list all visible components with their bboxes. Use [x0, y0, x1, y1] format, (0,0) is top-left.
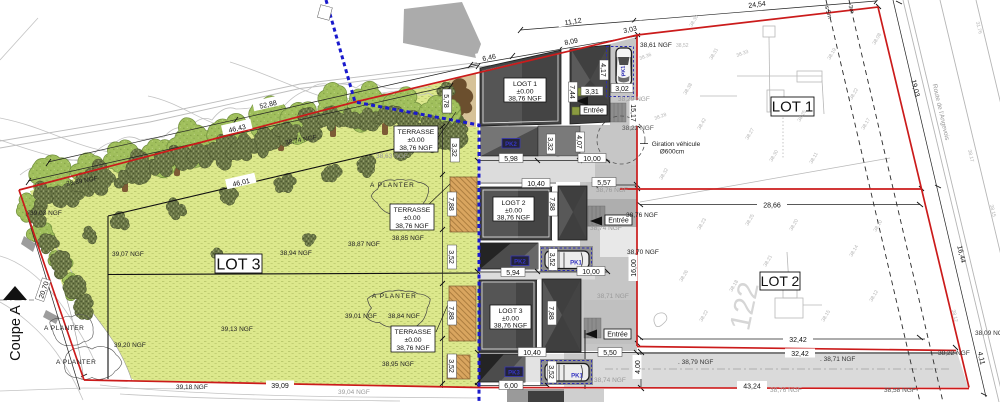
svg-text:LOT 2: LOT 2	[761, 273, 800, 289]
svg-text:39,20 NGF: 39,20 NGF	[114, 342, 146, 349]
svg-text:3,32: 3,32	[546, 137, 553, 151]
svg-text:38,71 NGF: 38,71 NGF	[597, 293, 629, 300]
svg-text:4,00: 4,00	[635, 360, 642, 374]
svg-text:LOGT 1: LOGT 1	[513, 81, 537, 88]
svg-text:16,00: 16,00	[631, 259, 638, 277]
svg-text:38,52: 38,52	[676, 43, 689, 49]
svg-text:7,88: 7,88	[548, 197, 555, 211]
svg-text:Entrée: Entrée	[583, 108, 604, 115]
svg-text:. 38,79 NGF: . 38,79 NGF	[678, 359, 713, 366]
svg-text:PK1: PK1	[570, 261, 582, 267]
svg-text:38,22 NGF: 38,22 NGF	[622, 125, 654, 132]
svg-text:Giration véhicule: Giration véhicule	[652, 141, 701, 148]
svg-text:38,29 NGF: 38,29 NGF	[618, 96, 650, 103]
svg-text:7,88: 7,88	[447, 197, 454, 211]
svg-text:32,42: 32,42	[791, 351, 809, 358]
svg-text:PK1: PK1	[621, 65, 628, 76]
svg-text:32,42: 32,42	[789, 337, 807, 344]
svg-text:38,74 NGF: 38,74 NGF	[590, 225, 622, 232]
svg-text:Entrée: Entrée	[607, 332, 628, 339]
svg-text:A PLANTER: A PLANTER	[56, 359, 96, 366]
svg-text:TERRASSE: TERRASSE	[394, 207, 431, 214]
svg-text:43,24: 43,24	[743, 384, 761, 391]
svg-text:39,18 NGF: 39,18 NGF	[176, 384, 208, 391]
svg-text:38,76 NGF: 38,76 NGF	[399, 145, 432, 152]
svg-text:38,94 NGF: 38,94 NGF	[280, 250, 312, 257]
svg-text:±0.00: ±0.00	[502, 316, 519, 323]
svg-text:38,61 NGF: 38,61 NGF	[640, 42, 672, 49]
svg-text:5,78: 5,78	[442, 94, 449, 108]
svg-text:7,44: 7,44	[568, 85, 575, 99]
svg-text:39,09: 39,09	[271, 383, 289, 390]
svg-text:±0.00: ±0.00	[408, 137, 425, 144]
svg-text:A PLANTER: A PLANTER	[44, 325, 84, 332]
svg-text:3,02: 3,02	[615, 86, 629, 93]
svg-text:TERRASSE: TERRASSE	[395, 329, 432, 336]
svg-text:15,17: 15,17	[629, 104, 636, 122]
svg-text:39,01 NGF: 39,01 NGF	[345, 313, 377, 320]
svg-text:28,66: 28,66	[763, 203, 781, 210]
svg-text:39,07 NGF: 39,07 NGF	[112, 251, 144, 258]
svg-text:38,87 NGF: 38,87 NGF	[348, 241, 380, 248]
svg-text:10,00: 10,00	[582, 269, 600, 276]
svg-text:PK2: PK2	[505, 142, 517, 148]
svg-text:4,07: 4,07	[575, 135, 582, 149]
svg-text:38,76 NGF: 38,76 NGF	[494, 323, 527, 330]
svg-text:LOGT 2: LOGT 2	[501, 200, 525, 207]
svg-text:39,04 NGF: 39,04 NGF	[338, 389, 370, 396]
svg-text:38,95 NGF: 38,95 NGF	[382, 361, 414, 368]
svg-text:10,40: 10,40	[527, 181, 545, 188]
svg-text:4,17: 4,17	[599, 63, 606, 77]
svg-text:39,03 NGF: 39,03 NGF	[30, 210, 62, 217]
svg-text:3,52: 3,52	[447, 250, 454, 264]
svg-text:3,52: 3,52	[447, 359, 454, 373]
svg-text:PK2: PK2	[514, 260, 526, 266]
svg-text:5,98: 5,98	[504, 156, 518, 163]
svg-text:39,13 NGF: 39,13 NGF	[221, 326, 253, 333]
svg-text:38,74 NGF: 38,74 NGF	[594, 377, 626, 384]
svg-text:3,32: 3,32	[450, 143, 457, 157]
svg-text:38,70 NGF: 38,70 NGF	[627, 249, 659, 256]
svg-text:A PLANTER: A PLANTER	[372, 293, 417, 300]
svg-text:7,88: 7,88	[547, 306, 554, 320]
svg-text:3,31: 3,31	[585, 89, 599, 96]
svg-text:. 38,71 NGF: . 38,71 NGF	[820, 356, 855, 363]
svg-text:5,57: 5,57	[597, 180, 611, 187]
svg-text:TERRASSE: TERRASSE	[398, 129, 435, 136]
svg-text:38,09 NGF: 38,09 NGF	[975, 330, 1000, 337]
svg-text:5,50: 5,50	[603, 350, 617, 357]
svg-text:38,76 NGF: 38,76 NGF	[508, 96, 541, 103]
svg-text:±0.00: ±0.00	[405, 337, 422, 344]
svg-text:38,84 NGF: 38,84 NGF	[388, 313, 420, 320]
svg-text:10,40: 10,40	[523, 350, 541, 357]
svg-text:38,22 NGF: 38,22 NGF	[938, 350, 970, 357]
svg-text:38,76 NGF: 38,76 NGF	[596, 187, 628, 194]
svg-text:±0.00: ±0.00	[517, 89, 534, 96]
svg-text:38,85 NGF: 38,85 NGF	[392, 235, 424, 242]
svg-text:3,52: 3,52	[548, 253, 555, 267]
svg-text:38,76 NGF: 38,76 NGF	[395, 223, 428, 230]
svg-text:10,00: 10,00	[583, 156, 601, 163]
svg-text:38,58 NGF: 38,58 NGF	[884, 387, 916, 394]
svg-text:LOT 3: LOT 3	[216, 257, 260, 274]
svg-text:3,52: 3,52	[547, 365, 554, 379]
svg-text:LOGT 3: LOGT 3	[498, 308, 522, 315]
svg-text:38,76 NGF: 38,76 NGF	[770, 387, 802, 394]
svg-text:6,00: 6,00	[504, 383, 518, 390]
svg-text:A PLANTER: A PLANTER	[370, 182, 415, 189]
svg-text:±0.00: ±0.00	[505, 208, 522, 215]
svg-text:PK1: PK1	[571, 374, 583, 380]
svg-text:7,88: 7,88	[447, 306, 454, 320]
svg-text:38,76 NGF: 38,76 NGF	[396, 345, 429, 352]
svg-text:38,76 NGF: 38,76 NGF	[626, 212, 658, 219]
svg-text:Coupe A: Coupe A	[8, 305, 24, 361]
svg-text:±0.00: ±0.00	[404, 215, 421, 222]
svg-text:PK3: PK3	[508, 371, 520, 377]
svg-text:38,76 NGF: 38,76 NGF	[497, 215, 530, 222]
svg-text:38,63 NGF: 38,63 NGF	[376, 153, 408, 160]
svg-text:5,94: 5,94	[506, 270, 520, 277]
svg-text:Ø600cm: Ø600cm	[660, 149, 685, 156]
